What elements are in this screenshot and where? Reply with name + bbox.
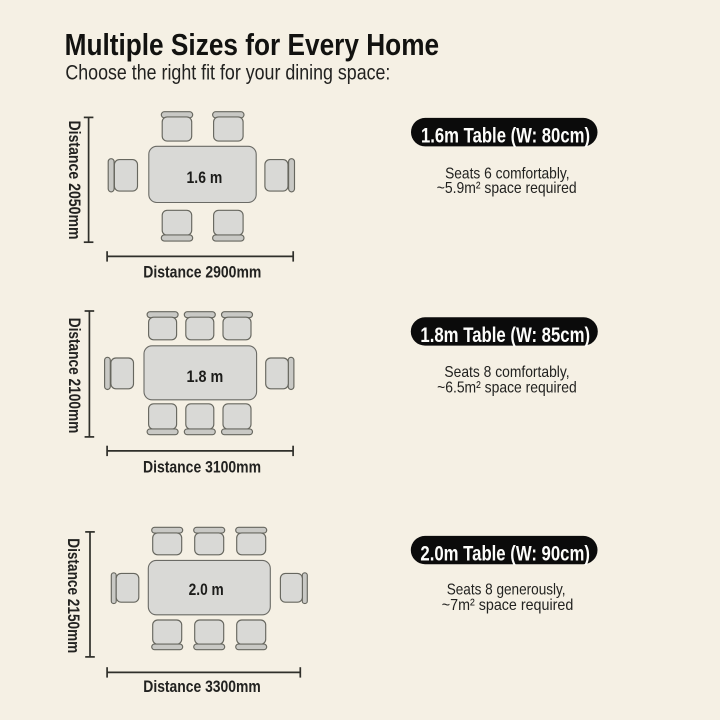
svg-text:Distance 2900mm: Distance 2900mm [143, 264, 261, 282]
svg-text:2.0 m: 2.0 m [189, 580, 224, 599]
svg-text:Distance 2050mm: Distance 2050mm [65, 121, 83, 240]
svg-text:1.6 m: 1.6 m [187, 168, 223, 187]
svg-text:Distance 3100mm: Distance 3100mm [143, 458, 261, 476]
svg-text:Distance 3300mm: Distance 3300mm [143, 678, 260, 696]
svg-text:2.0m Table (W: 90cm): 2.0m Table (W: 90cm) [420, 541, 590, 565]
svg-text:Multiple Sizes for Every Home: Multiple Sizes for Every Home [65, 27, 440, 62]
svg-text:1.8 m: 1.8 m [187, 367, 224, 386]
svg-text:~5.9m² space required: ~5.9m² space required [437, 180, 577, 197]
svg-text:1.8m Table (W: 85cm): 1.8m Table (W: 85cm) [420, 323, 590, 347]
svg-text:~6.5m² space required: ~6.5m² space required [437, 379, 577, 396]
svg-text:Distance 2150mm: Distance 2150mm [64, 538, 82, 653]
svg-text:Choose the right fit for your: Choose the right fit for your dining spa… [65, 62, 390, 85]
svg-text:~7m² space required: ~7m² space required [442, 597, 574, 614]
svg-text:Distance 2100mm: Distance 2100mm [65, 318, 83, 434]
svg-text:Seats 8 generously,: Seats 8 generously, [447, 581, 566, 598]
svg-text:1.6m Table (W: 80cm): 1.6m Table (W: 80cm) [421, 124, 590, 148]
